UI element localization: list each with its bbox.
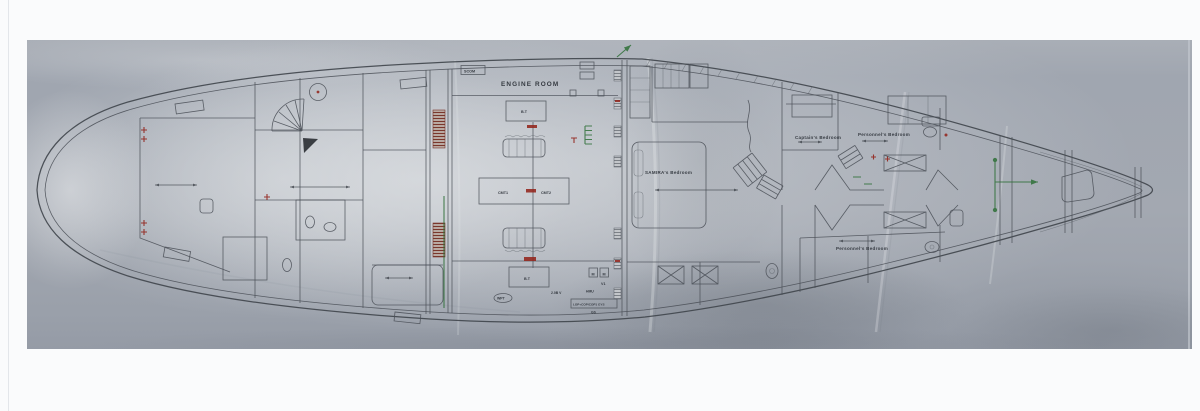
- label-bt-top: B.T: [521, 110, 528, 114]
- label-v1: V1: [601, 282, 606, 286]
- red-outlet-marks: [871, 155, 890, 162]
- label-scom: SCOM: [464, 70, 475, 74]
- label-hmu: HMU: [586, 290, 594, 294]
- label-gs: GS: [591, 311, 597, 315]
- cabin-stairs: [838, 145, 863, 168]
- electrical-panel-upper: [433, 110, 445, 148]
- deck-plan-drawing: ENGINE ROOM SAMIRA's Bedroom Captain's B…: [0, 0, 1200, 411]
- label-motor-left: M: [592, 273, 595, 277]
- label-voltage: 2.0B V: [551, 291, 562, 295]
- label-motor-right: M: [603, 273, 606, 277]
- label-personnel-bedroom-lower: Personnel's Bedroom: [836, 246, 888, 251]
- label-wpt: WPT: [497, 297, 506, 301]
- corridor-zigzag: [815, 155, 958, 230]
- screenshot-stage: ENGINE ROOM SAMIRA's Bedroom Captain's B…: [0, 0, 1200, 411]
- label-personnel-bedroom-upper: Personnel's Bedroom: [858, 132, 910, 137]
- label-lop-panel: LOP+COP/COP1 GYS: [573, 303, 605, 307]
- electrical-panel-lower: [433, 223, 445, 257]
- label-bt-bottom: B.T: [524, 277, 531, 281]
- green-ticks: [853, 177, 872, 184]
- label-cmt2: CMT2: [541, 191, 551, 195]
- green-arrow-top: [617, 45, 631, 57]
- label-samira-bedroom: SAMIRA's Bedroom: [645, 170, 692, 175]
- label-cmt1: CMT1: [498, 191, 508, 195]
- paper-texture: [0, 30, 1200, 375]
- label-captain-bedroom: Captain's Bedroom: [795, 135, 841, 140]
- label-engine-room: ENGINE ROOM: [501, 81, 559, 88]
